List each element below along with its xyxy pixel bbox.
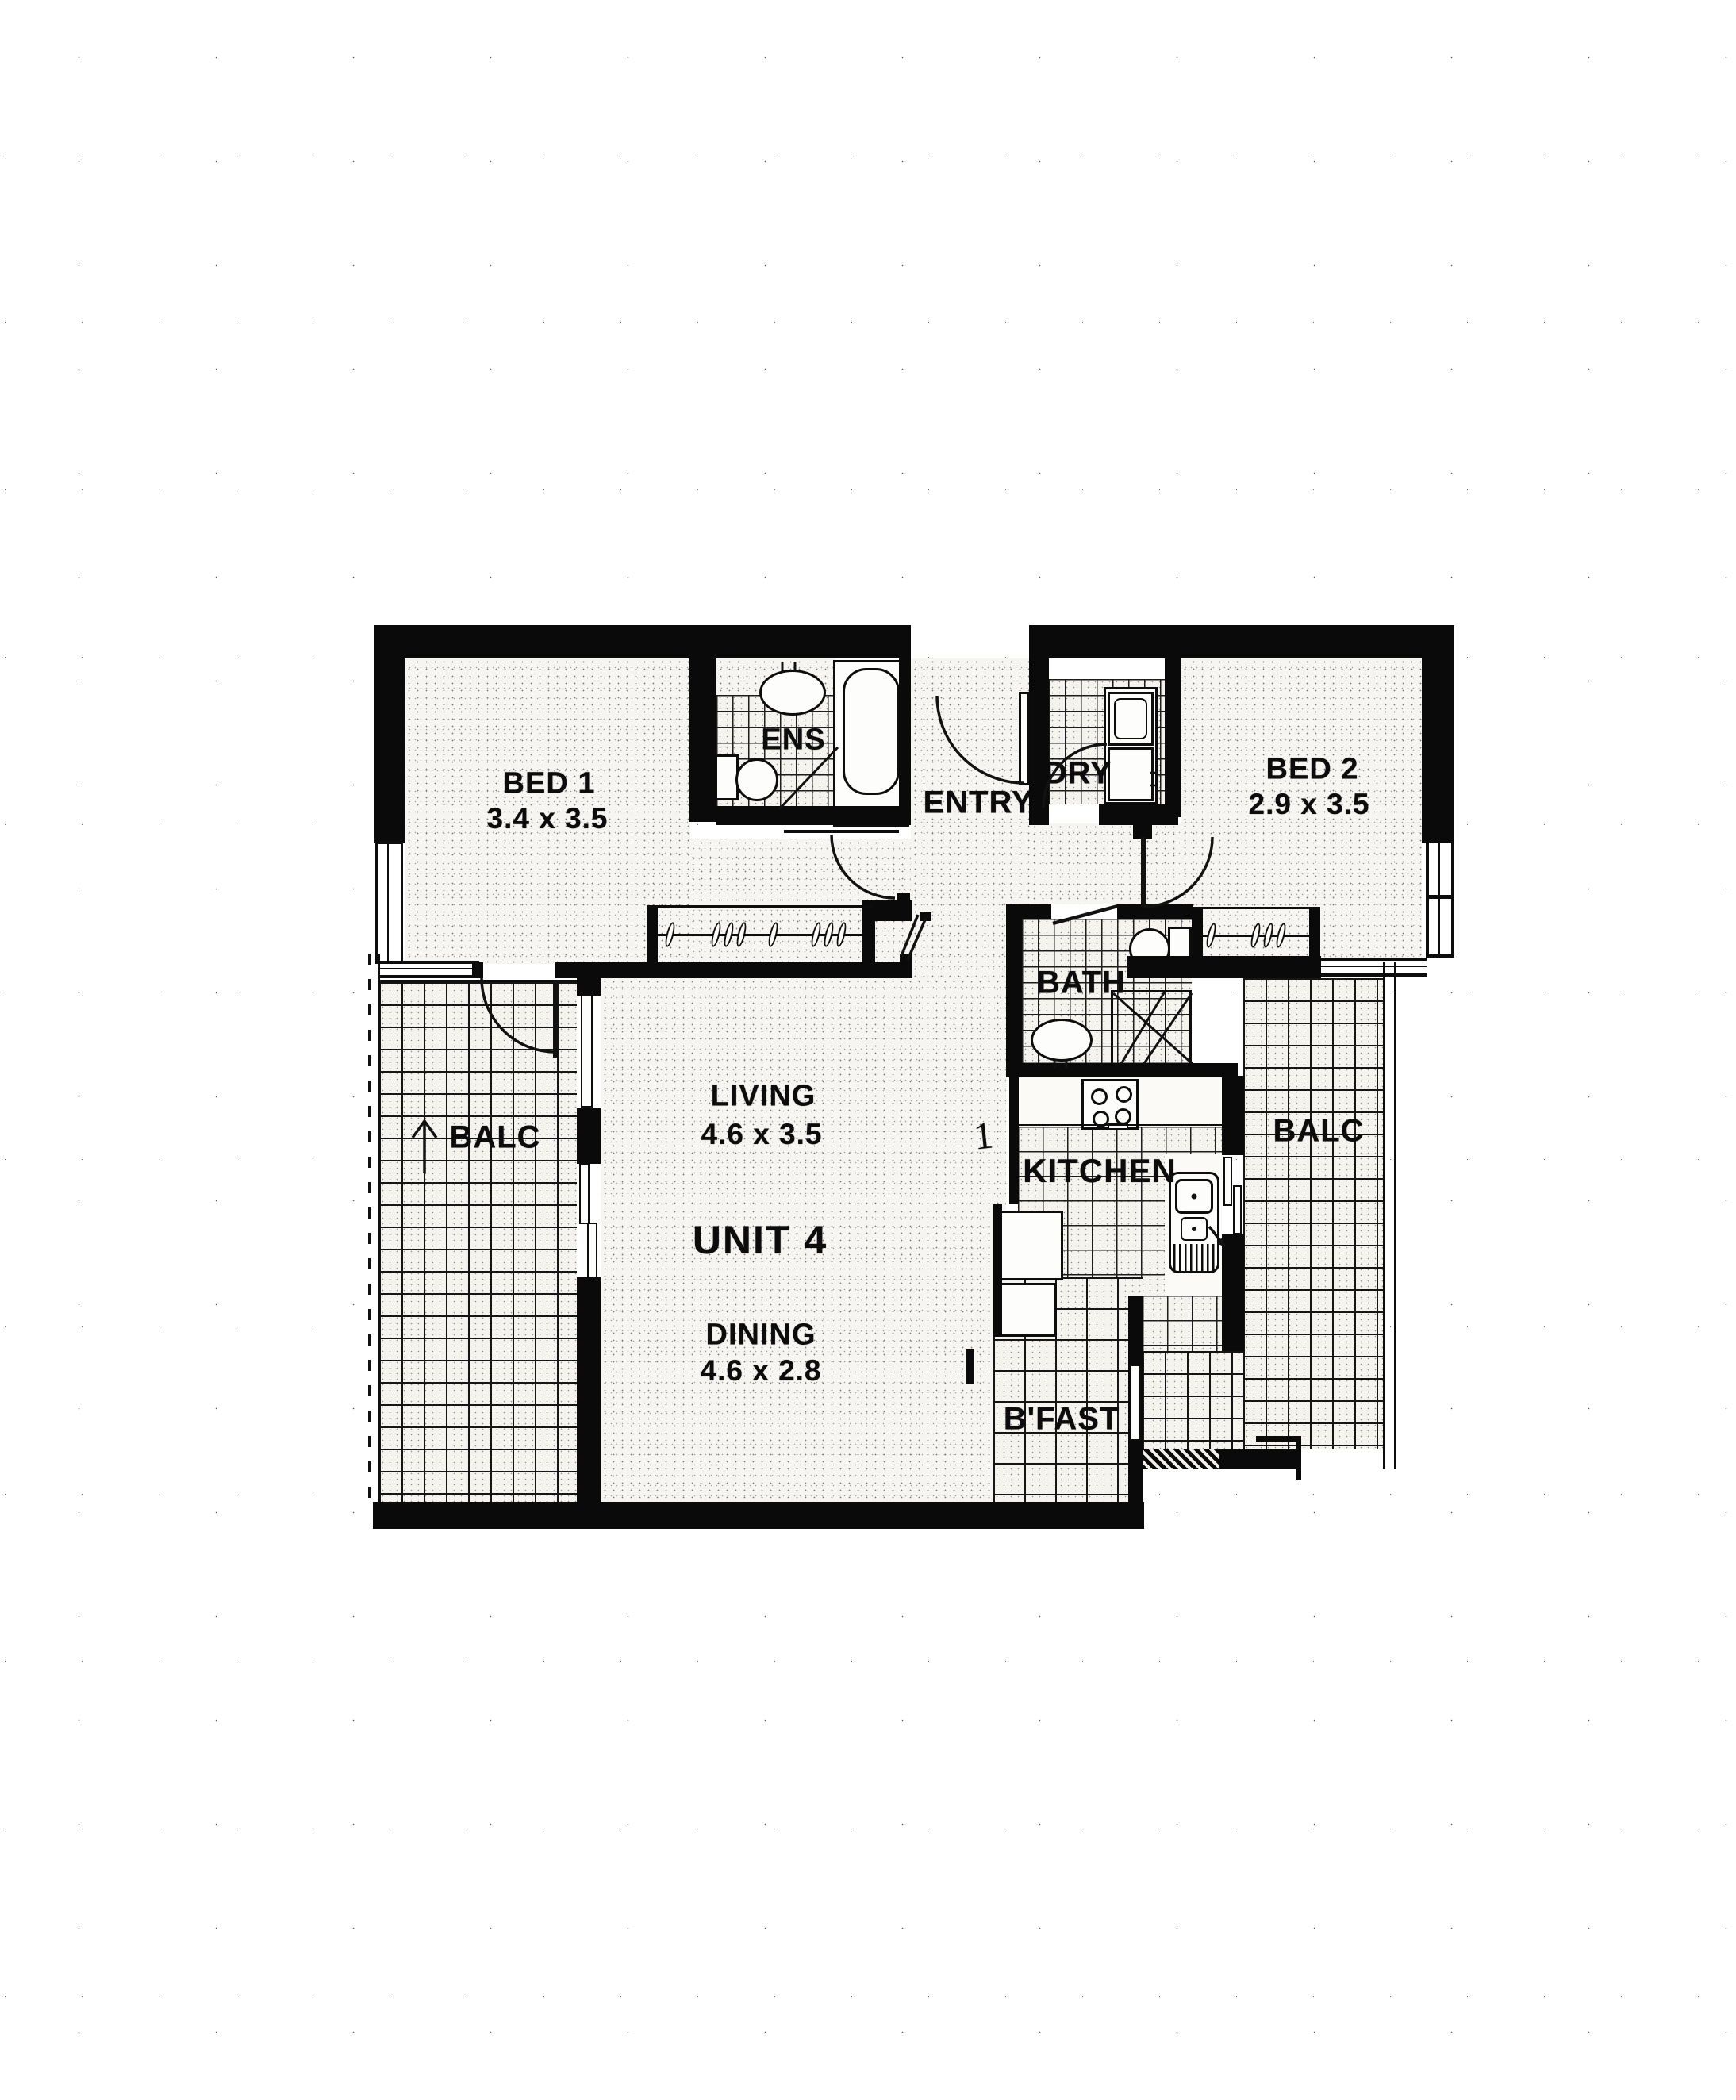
ens-door-stop: [897, 893, 910, 904]
wall: [1099, 804, 1178, 825]
wall: [577, 1277, 601, 1503]
wall: [1296, 1436, 1301, 1480]
stove-burner: [1091, 1088, 1108, 1105]
robe2-post: [1309, 908, 1320, 959]
sliding-door-panel: [587, 1223, 597, 1278]
bed1-window-h: [378, 968, 479, 969]
wall: [1222, 1076, 1244, 1155]
bed1-window-h: [378, 975, 479, 978]
room-label-balc-right: BALC: [1273, 1114, 1364, 1150]
bed2-window-v: [1426, 843, 1429, 958]
entry-door-leaf: [1019, 692, 1029, 785]
room-label-balc-left: BALC: [449, 1120, 540, 1156]
ens-door-threshold: [784, 830, 899, 833]
wall: [1006, 904, 1022, 1076]
wall: [577, 978, 601, 996]
room-label-bed2: BED 2: [1266, 753, 1359, 787]
room-label-ens: ENS: [761, 724, 825, 758]
wall: [1165, 658, 1181, 817]
room-label-dining: DINING: [706, 1319, 816, 1353]
room-label-bath: BATH: [1037, 966, 1126, 1001]
hall-floor: [1030, 823, 1192, 904]
wall: [1029, 658, 1049, 825]
kitchen-sink-bowl-1: [1175, 1179, 1213, 1214]
bed2-window-h: [1321, 958, 1427, 961]
bed2-window-h: [1321, 966, 1427, 967]
wall: [1029, 625, 1454, 658]
bed2-window-cap: [1426, 954, 1454, 958]
robe2-front: [1192, 907, 1320, 909]
servery-window-panel: [1223, 1157, 1232, 1206]
bed1-window-cap: [476, 961, 479, 978]
wall: [993, 1204, 1002, 1337]
room-dims-bed2: 2.9 x 3.5: [1248, 788, 1369, 821]
wall: [966, 1349, 974, 1384]
balcony-right-rail: [1383, 962, 1385, 1469]
ens-toilet-bowl-icon: [735, 758, 778, 801]
bed1-window-cap: [375, 841, 403, 844]
balcony-right-tiles: [1243, 978, 1383, 1449]
balcony-left-top-line: [379, 980, 577, 982]
sliding-door-panel: [581, 994, 593, 1108]
bed2-window-h: [1321, 973, 1427, 977]
ens-basin-icon: [759, 670, 826, 716]
bath-basin-icon: [1031, 1019, 1093, 1062]
wall: [1006, 904, 1051, 919]
bed1-window-v: [375, 843, 378, 964]
pantry-icon: [998, 1283, 1057, 1337]
floor-plan: BED 1 3.4 x 3.5 ENS ENTRY LDRY BED 2 2.9…: [0, 0, 1736, 2100]
wall: [577, 1108, 601, 1164]
wall: [716, 806, 911, 825]
wall: [899, 658, 911, 809]
wall: [1219, 1449, 1299, 1469]
splay-door-end: [920, 912, 931, 921]
kitchen-tiles-patch: [1143, 1296, 1222, 1351]
wall: [1127, 956, 1321, 978]
bed1-window-v: [401, 843, 403, 964]
bed1-window-v: [387, 843, 389, 964]
bed2-window-v: [1438, 843, 1440, 958]
bed2-window-v: [1451, 843, 1454, 958]
washing-machine-icon: [1108, 747, 1154, 801]
sink-drainboard: [1173, 1244, 1215, 1271]
stove-burner: [1116, 1086, 1132, 1103]
robe2-post: [1192, 908, 1203, 959]
robe1-front: [647, 905, 873, 908]
bed1-window-h: [378, 961, 479, 964]
fridge-icon: [998, 1211, 1063, 1280]
wall: [1222, 1298, 1244, 1351]
wall: [689, 658, 716, 822]
bathtub-icon: [843, 668, 900, 795]
wall: [374, 658, 405, 843]
servery-window-panel: [1233, 1185, 1242, 1234]
wall: [374, 625, 911, 658]
room-label-entry: ENTRY: [923, 785, 1033, 821]
balcony-left-rail: [378, 954, 380, 1502]
wall: [1256, 1436, 1301, 1442]
shower-icon: [1111, 990, 1192, 1067]
bfast-balcony-door: [1130, 1365, 1141, 1441]
balcony-right-rail: [1394, 962, 1396, 1469]
wall: [373, 1502, 1144, 1529]
sliding-door-panel: [579, 1164, 590, 1224]
wall: [1117, 904, 1193, 919]
room-label-living: LIVING: [711, 1080, 816, 1114]
stove-icon: [1081, 1079, 1139, 1130]
room-label-bed1: BED 1: [503, 767, 596, 801]
laundry-tub-bowl: [1114, 698, 1147, 739]
balcony-left-tiles: [379, 982, 577, 1502]
kitchen-bench-line: [1018, 1124, 1222, 1126]
wall: [1006, 1063, 1238, 1077]
bed2-window-divider: [1426, 895, 1454, 899]
wall: [1422, 658, 1454, 843]
room-dims-bed1: 3.4 x 3.5: [486, 802, 608, 835]
scanned-floor-plan-page: { "plan": { "unit_label": "UNIT 4", "str…: [0, 0, 1736, 2100]
wall: [1222, 1234, 1244, 1298]
balcony-left-boundary-dashed: [368, 954, 371, 1502]
robe1-post: [647, 907, 658, 964]
splay-door-end: [900, 954, 912, 963]
room-dims-living: 4.6 x 3.5: [701, 1118, 822, 1151]
kitchen-sink-bowl-2: [1181, 1217, 1208, 1241]
room-dims-dining: 4.6 x 2.8: [700, 1354, 821, 1388]
wall: [555, 962, 912, 978]
unit-title: UNIT 4: [693, 1217, 828, 1263]
balcony-right-ext-tiles: [1143, 1351, 1243, 1449]
room-label-bfast: B'FAST: [1004, 1402, 1120, 1438]
balcony-edge-hatched: [1143, 1449, 1219, 1469]
room-label-kitchen: KITCHEN: [1023, 1152, 1177, 1190]
wall: [1009, 1077, 1019, 1204]
wall: [1133, 825, 1152, 839]
